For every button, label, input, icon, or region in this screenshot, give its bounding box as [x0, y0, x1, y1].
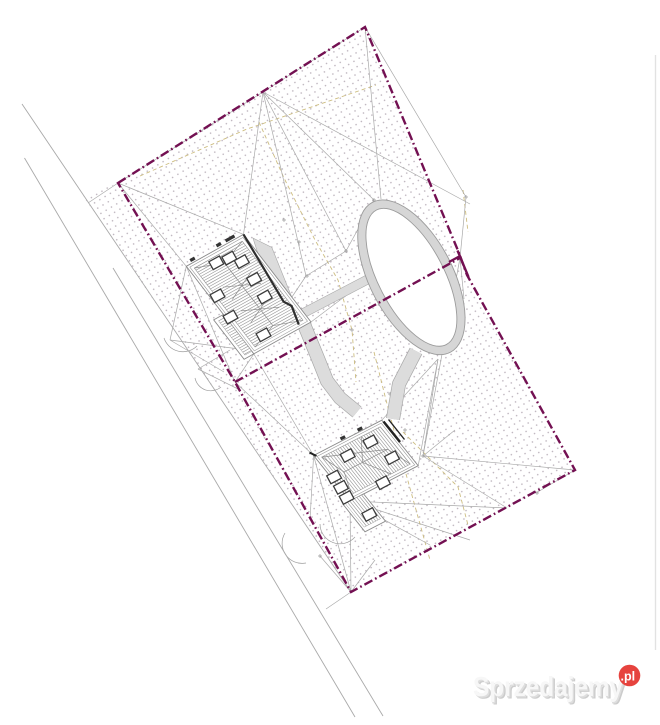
- svg-text:.pl: .pl: [621, 670, 636, 684]
- svg-text:Sprzedajemy: Sprzedajemy: [473, 671, 624, 702]
